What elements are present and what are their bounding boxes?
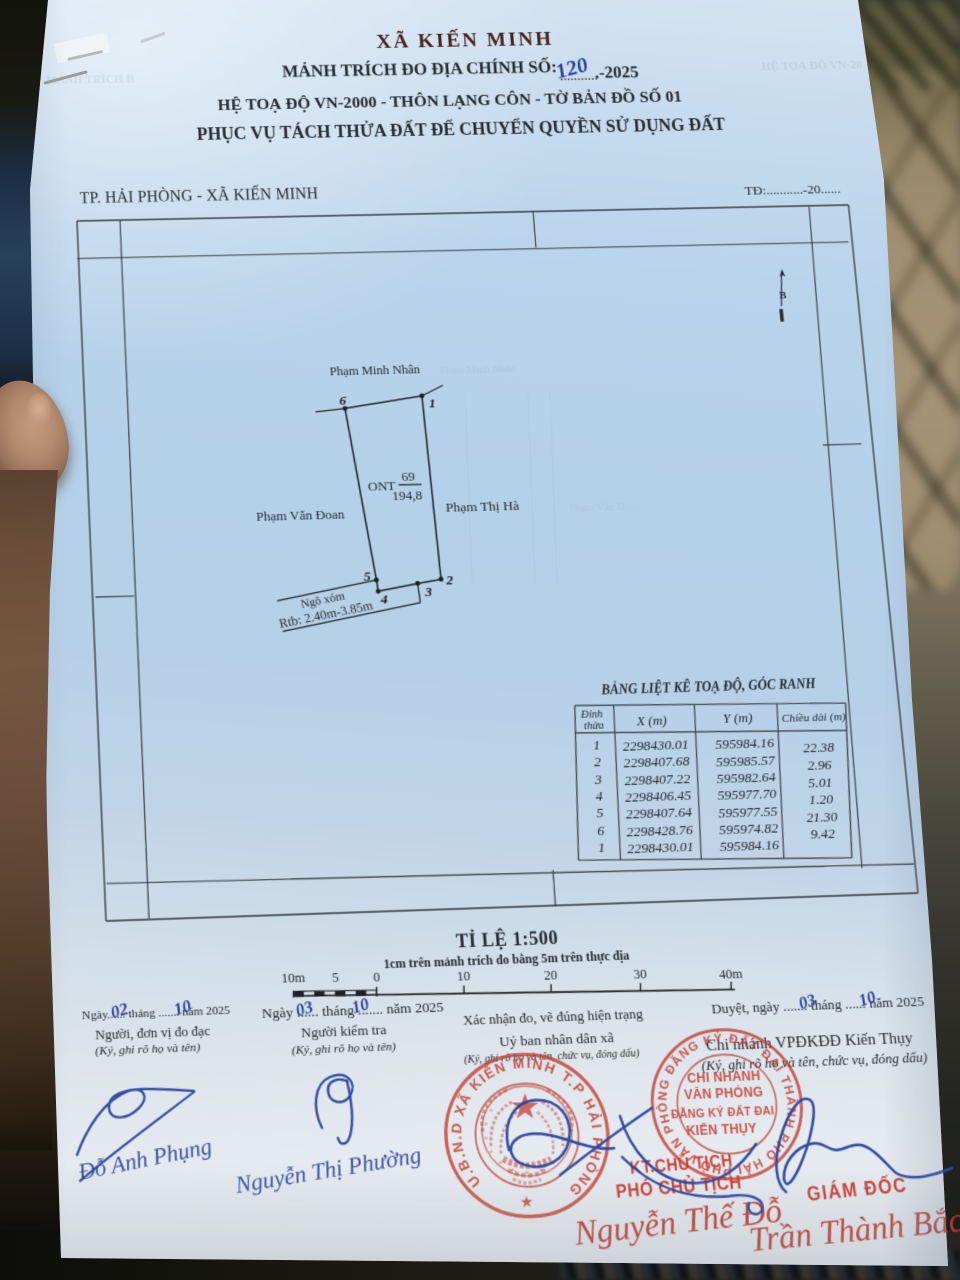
svg-text:.-2025: .-2025 bbox=[594, 62, 640, 82]
svg-text:2298430.01: 2298430.01 bbox=[626, 838, 694, 856]
svg-text:TĐ:...........-20......: TĐ:...........-20...... bbox=[744, 181, 841, 198]
svg-text:ĐĂNG KÝ ĐẤT ĐAI: ĐĂNG KÝ ĐẤT ĐAI bbox=[670, 1103, 774, 1122]
svg-text:2: 2 bbox=[444, 571, 454, 587]
svg-text:KIẾN THỤY: KIẾN THỤY bbox=[686, 1121, 758, 1138]
svg-text:2: 2 bbox=[593, 754, 602, 770]
svg-text:GIÁM ĐỐC: GIÁM ĐỐC bbox=[805, 1172, 908, 1205]
svg-text:XÃ KIẾN MINH: XÃ KIẾN MINH bbox=[376, 29, 554, 53]
svg-text:(Ký, ghi rõ họ và tên): (Ký, ghi rõ họ và tên) bbox=[291, 1040, 396, 1057]
svg-text:10: 10 bbox=[456, 968, 470, 984]
svg-text:1: 1 bbox=[597, 839, 605, 855]
svg-text:B: B bbox=[779, 290, 787, 301]
svg-text:2.96: 2.96 bbox=[807, 756, 833, 773]
svg-text:595977.70: 595977.70 bbox=[717, 785, 778, 803]
svg-text:40m: 40m bbox=[718, 966, 743, 982]
svg-text:Người kiểm tra: Người kiểm tra bbox=[301, 1022, 388, 1041]
svg-text:6: 6 bbox=[596, 822, 605, 838]
svg-text:595977.55: 595977.55 bbox=[718, 802, 779, 820]
svg-text:5: 5 bbox=[332, 969, 340, 985]
svg-text:3: 3 bbox=[423, 583, 433, 599]
svg-text:4: 4 bbox=[595, 788, 604, 804]
svg-text:2298428.76: 2298428.76 bbox=[626, 821, 694, 839]
svg-text:22.38: 22.38 bbox=[802, 739, 835, 756]
svg-text:2298407.68: 2298407.68 bbox=[623, 753, 691, 771]
svg-text:TỈ LỆ 1:500: TỈ LỆ 1:500 bbox=[455, 925, 559, 951]
svg-text:1: 1 bbox=[428, 395, 436, 410]
svg-text:30: 30 bbox=[633, 966, 647, 982]
svg-text:6: 6 bbox=[339, 393, 347, 408]
svg-text:5.01: 5.01 bbox=[807, 774, 833, 791]
svg-text:1: 1 bbox=[592, 737, 600, 753]
svg-text:Y (m): Y (m) bbox=[722, 710, 753, 726]
svg-text:2298406.45: 2298406.45 bbox=[624, 787, 692, 805]
svg-text:HỆ TOẠ ĐỘ VN-20: HỆ TOẠ ĐỘ VN-20 bbox=[761, 58, 863, 73]
svg-text:69: 69 bbox=[401, 469, 415, 484]
svg-text:CHI NHÁNH: CHI NHÁNH bbox=[686, 1068, 760, 1085]
svg-text:Xác nhận đo, vẽ đúng hiện trạn: Xác nhận đo, vẽ đúng hiện trạng bbox=[463, 1005, 645, 1027]
svg-text:Duyệt, ngày ....... tháng ....: Duyệt, ngày ....... tháng ...... năm 202… bbox=[711, 993, 925, 1016]
svg-text:HỆ TOẠ ĐỘ VN-2000 - THÔN LẠNG: HỆ TOẠ ĐỘ VN-2000 - THÔN LẠNG CÔN - TỜ B… bbox=[217, 85, 682, 114]
svg-text:Phạm Văn Đoan: Phạm Văn Đoan bbox=[256, 507, 346, 524]
svg-text:595984.16: 595984.16 bbox=[714, 734, 775, 752]
svg-text:Người, đơn vị đo đạc: Người, đơn vị đo đạc bbox=[95, 1023, 211, 1043]
svg-text:Chiều dài (m): Chiều dài (m) bbox=[781, 710, 847, 725]
svg-text:Nguyễn Thị Phường: Nguyễn Thị Phường bbox=[232, 1141, 423, 1199]
svg-text:9.42: 9.42 bbox=[810, 825, 836, 842]
svg-text:X (m): X (m) bbox=[635, 712, 668, 728]
svg-text:Phạm Thị Hà: Phạm Thị Hà bbox=[445, 497, 520, 514]
svg-text:Đỗ Anh Phụng: Đỗ Anh Phụng bbox=[75, 1134, 214, 1186]
svg-text:Phạm Văn Đoan: Phạm Văn Đoan bbox=[569, 501, 640, 514]
svg-text:4: 4 bbox=[379, 590, 389, 606]
svg-text:595974.82: 595974.82 bbox=[718, 819, 779, 837]
svg-text:PHỤC VỤ TÁCH THỬA ĐẤT ĐỂ CHUYỂ: PHỤC VỤ TÁCH THỬA ĐẤT ĐỂ CHUYỂN QUYỀN SỬ… bbox=[196, 113, 726, 143]
svg-text:Uỷ ban nhân dân xã: Uỷ ban nhân dân xã bbox=[499, 1028, 615, 1049]
svg-text:★: ★ bbox=[519, 1193, 534, 1211]
svg-text:5: 5 bbox=[596, 805, 605, 821]
svg-text:T.P HẢI PHÒNG: T.P HẢI PHÒNG bbox=[556, 1067, 610, 1200]
svg-text:194,8: 194,8 bbox=[392, 488, 423, 503]
svg-text:1.20: 1.20 bbox=[808, 791, 834, 808]
svg-text:VĂN PHÒNG ĐĂNG KÝ ĐẤT ĐAI THÀN: VĂN PHÒNG ĐĂNG KÝ ĐẤT ĐAI THÀNH PHỐ HẢI … bbox=[0, 0, 805, 1205]
svg-text:595984.16: 595984.16 bbox=[719, 836, 780, 854]
svg-text:Ngày...... tháng ....... năm 2: Ngày...... tháng ....... năm 2025 bbox=[82, 1004, 231, 1023]
svg-text:Phạm Minh Nhân: Phạm Minh Nhân bbox=[329, 362, 420, 378]
svg-text:5: 5 bbox=[363, 568, 371, 584]
svg-text:thửa: thửa bbox=[583, 720, 604, 732]
svg-text:MẢNH TRÍCH ĐO ĐỊA CHÍNH SỐ:: MẢNH TRÍCH ĐO ĐỊA CHÍNH SỐ: bbox=[282, 56, 558, 81]
svg-text:2298407.22: 2298407.22 bbox=[624, 770, 692, 788]
svg-text:2298430.01: 2298430.01 bbox=[622, 736, 689, 754]
svg-text:(Ký, ghi rõ họ và tên): (Ký, ghi rõ họ và tên) bbox=[95, 1041, 201, 1058]
svg-text:2298407.64: 2298407.64 bbox=[625, 804, 693, 822]
svg-text:10m: 10m bbox=[281, 969, 306, 985]
svg-text:595982.64: 595982.64 bbox=[716, 768, 777, 786]
svg-text:BẢNG LIỆT KÊ TOẠ ĐỘ, GÓC RANH: BẢNG LIỆT KÊ TOẠ ĐỘ, GÓC RANH bbox=[600, 674, 817, 698]
svg-text:TP. HẢI PHÒNG - XÃ KIẾN MINH: TP. HẢI PHÒNG - XÃ KIẾN MINH bbox=[79, 183, 318, 208]
svg-text:595985.57: 595985.57 bbox=[715, 751, 776, 769]
svg-text:1cm trên mảnh trích đo bằng 5m: 1cm trên mảnh trích đo bằng 5m trên thực… bbox=[383, 949, 630, 971]
svg-text:20: 20 bbox=[544, 967, 558, 983]
svg-text:3: 3 bbox=[593, 771, 603, 787]
svg-text:21.30: 21.30 bbox=[805, 808, 838, 825]
svg-text:VĂN PHÒNG: VĂN PHÒNG bbox=[684, 1085, 764, 1103]
svg-text:0: 0 bbox=[373, 969, 381, 985]
svg-text:Phạm Minh Nhân: Phạm Minh Nhân bbox=[440, 364, 516, 377]
